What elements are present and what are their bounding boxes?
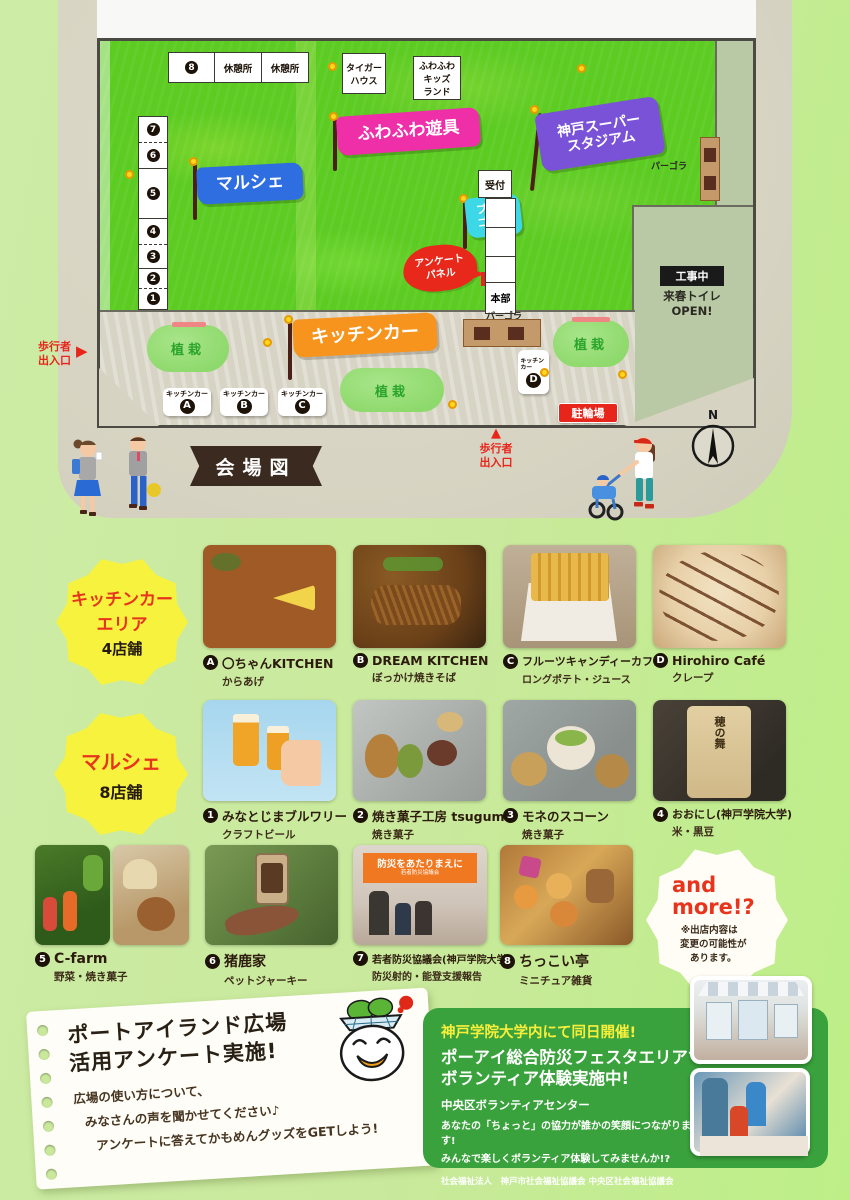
item-number: 7 [353, 951, 368, 966]
bousai-banner-text: 防災をあたりまえに [377, 859, 463, 870]
map-stall-2: 2 [139, 269, 167, 289]
photo-cfarm-vegetables [35, 845, 110, 945]
kids-land-label-1: ふわふわ [419, 59, 455, 72]
muffin [137, 897, 175, 931]
stall-number: 6 [147, 149, 160, 162]
item-name: 若者防災協議会(神戸学院大学) [372, 951, 511, 966]
item-desc: 焼き菓子 [353, 827, 509, 842]
light-dot [263, 338, 272, 347]
item-name: 焼き菓子工房 tsugumi [372, 806, 509, 825]
fuwafuwa-flag-label: ふわふわ遊具 [357, 118, 460, 145]
green-onion [383, 557, 443, 571]
spot-label: キッチンカー [166, 390, 208, 398]
pergola-table [704, 176, 716, 190]
entrance-left-arrow-icon: ▶ [76, 342, 88, 360]
photo-bousai-booth: 防災をあたりまえに 若者防災協議会 [353, 845, 487, 945]
photo-scone [503, 700, 636, 801]
item-name: C-farm [54, 951, 107, 967]
spot-label: キッチンカー [223, 390, 265, 398]
map-title: 会場図 [215, 453, 296, 480]
photo-long-potato [503, 545, 636, 648]
vegetable [63, 891, 77, 931]
kitchencar-banner-label: キッチンカー [311, 322, 420, 348]
person-silhouette [746, 1082, 766, 1126]
stroller-person-illustration [582, 430, 677, 532]
survey-note: ポートアイランド広場 活用アンケート実施! 広場の使い方について、 みなさんの声… [26, 987, 438, 1189]
item-desc: クラフトビール [203, 827, 347, 842]
map-stall-4: 4 [139, 219, 167, 245]
photo-pet-jerky [205, 845, 338, 945]
kitchencar-spot-c: キッチンカー C [278, 388, 326, 416]
kids-land-label-3: ランド [423, 85, 450, 98]
garnish [211, 553, 241, 571]
planting-label: 植栽 [574, 334, 608, 353]
punch-hole [46, 1168, 58, 1180]
person-silhouette [369, 891, 389, 935]
venue-map: 8 休憩所 休憩所 タイガー ハウス ふわふわ キッズ ランド 7 6 5 4 … [97, 38, 756, 428]
stadium-flag: 神戸スーパー スタジアム [534, 96, 666, 173]
light-dot [125, 170, 134, 179]
item-desc: クレープ [653, 670, 765, 685]
item-number: 3 [503, 808, 518, 823]
item-name: DREAM KITCHEN [372, 653, 489, 668]
photo-crepe [653, 545, 786, 648]
item-name: 猪鹿家 [224, 951, 266, 971]
item-desc: ミニチュア雑貨 [500, 973, 592, 988]
kitchen-item-caption-d: DHirohiro Café クレープ [653, 653, 765, 685]
item-letter: C [503, 654, 518, 669]
construction-sign: 工事中 [660, 266, 724, 286]
item-desc: 米・黒豆 [653, 824, 792, 839]
stall-number: 7 [147, 123, 160, 136]
punch-hole [37, 1025, 49, 1037]
map-kids-land: ふわふわ キッズ ランド [413, 56, 461, 100]
photo-cfarm-muffins [113, 845, 189, 945]
stall-number-8: 8 [185, 61, 198, 74]
planting-oval-center: 植栽 [340, 368, 444, 412]
photo-volunteer-tent [690, 976, 812, 1064]
event-flyer: 8 休憩所 休憩所 タイガー ハウス ふわふわ キッズ ランド 7 6 5 4 … [0, 0, 849, 1200]
punch-hole [38, 1049, 50, 1061]
badge-line: エリア [97, 610, 148, 635]
item-number: 8 [500, 954, 515, 969]
entrance-label-1: 歩行者 [470, 442, 522, 456]
item-name: Hirohiro Café [672, 653, 765, 668]
marche-item-caption-3: 3モネのスコーン 焼き菓子 [503, 806, 609, 842]
lemon-wedge [273, 585, 315, 611]
kitchencar-banner: キッチンカー [292, 312, 438, 357]
miniature-sweet [518, 855, 542, 879]
jerky-piece [223, 900, 301, 941]
entrance-label-2: 出入口 [38, 354, 71, 368]
map-stall-8: 8 [168, 52, 215, 83]
item-number: 5 [35, 952, 50, 967]
marche-item-caption-6: 6猪鹿家 ペットジャーキー [205, 951, 307, 988]
kids-land-label-2: キッズ [423, 72, 450, 85]
item-number: 6 [205, 954, 220, 969]
punch-hole [44, 1144, 56, 1156]
baked-good [427, 740, 457, 766]
photo-oonishi-rice: 穂の舞 [653, 700, 786, 801]
map-stall-column: 7 6 5 4 3 2 1 [138, 116, 168, 310]
light-dot [540, 368, 549, 377]
map-stall-5: 5 [139, 169, 167, 219]
poster-board [738, 1000, 768, 1040]
photo-volunteer-activity [690, 1068, 810, 1156]
item-name: 〇ちゃんKITCHEN [222, 653, 334, 672]
note-line: ※出店内容は [672, 924, 747, 938]
miniature-sweet [514, 885, 538, 909]
toilet-open-notice: 来春トイレ OPEN! [628, 289, 756, 319]
entrance-label-2: 出入口 [470, 456, 522, 470]
survey-panel-callout: アンケート パネル [400, 241, 479, 296]
fuwafuwa-flag: ふわふわ遊具 [336, 107, 481, 156]
kitchencar-area-badge: キッチンカー エリア 4店舗 [56, 556, 188, 688]
map-zone-right-strip [715, 41, 753, 205]
light-dot [328, 62, 337, 71]
chocolate-drizzle [659, 551, 779, 641]
jar-contents [261, 863, 283, 893]
volunteer-body-1: あなたの「ちょっと」の協力が誰かの笑顔につながります! [441, 1117, 701, 1147]
item-desc: 焼き菓子 [503, 827, 609, 842]
marche-flag-label: マルシェ [216, 172, 285, 195]
spot-letter: B [237, 399, 252, 414]
miniature-sweet [550, 901, 578, 927]
photo-miniature-goods [500, 845, 633, 945]
bousai-banner-subtext: 若者防災協議会 [401, 870, 440, 877]
entrance-bottom-arrow-icon: ▲ [470, 426, 522, 441]
person-silhouette [395, 903, 411, 935]
tent-roof [698, 982, 804, 996]
spot-letter: A [180, 399, 195, 414]
marche-flag-dot [189, 157, 198, 166]
item-desc: 野菜・焼き菓子 [35, 969, 128, 984]
planting-label: 植栽 [375, 381, 409, 400]
map-headquarters: 本部 [486, 283, 515, 311]
noodles [371, 585, 461, 625]
item-number: 4 [653, 807, 668, 822]
scone [511, 752, 547, 786]
light-dot [618, 370, 627, 379]
muffin [123, 859, 157, 889]
marche-item-caption-5: 5C-farm 野菜・焼き菓子 [35, 951, 128, 984]
badge-line: マルシェ [81, 746, 161, 775]
toilet-notice-line-1: 来春トイレ [628, 289, 756, 304]
stadium-flag-dot [530, 105, 539, 114]
kitchencar-spot-b: キッチンカー B [220, 388, 268, 416]
item-letter: B [353, 653, 368, 668]
hq-cell [486, 228, 515, 257]
beer-cup [233, 714, 259, 766]
scone [595, 754, 629, 788]
baked-good [437, 712, 463, 732]
marche-item-caption-1: 1みなとじまブルワリー クラフトビール [203, 806, 347, 842]
badge-line: キッチンカー [71, 585, 173, 610]
map-stall-7: 7 [139, 117, 167, 143]
rice-bag-text: 穂の舞 [711, 716, 727, 798]
fries [531, 553, 609, 601]
vegetable [43, 897, 57, 931]
stall-number: 3 [147, 250, 160, 263]
badge-line: 8店舗 [99, 779, 142, 803]
stall-number: 5 [147, 187, 160, 200]
marche-item-caption-8: 8ちっこい亭 ミニチュア雑貨 [500, 951, 592, 988]
kitchen-item-caption-c: Cフルーツキャンディーカフェ ロングポテト・ジュース [503, 653, 664, 686]
entrance-label-1: 歩行者 [38, 340, 71, 354]
kitchen-item-caption-a: A〇ちゃんKITCHEN からあげ [203, 653, 334, 689]
photo-brewery [203, 700, 336, 801]
walking-people-illustration [58, 432, 170, 528]
miniature-bear [586, 869, 614, 903]
marche-badge: マルシェ 8店舗 [54, 710, 188, 838]
item-number: 1 [203, 808, 218, 823]
item-number: 2 [353, 808, 368, 823]
entrance-bottom: 歩行者 出入口 [470, 442, 522, 470]
spot-label: キッチンカー [281, 390, 323, 398]
pergola-right-label: パーゴラ [651, 159, 687, 172]
pergola-table [508, 327, 524, 340]
hq-cell [486, 257, 515, 283]
table [700, 1136, 808, 1156]
and-more-note: ※出店内容は 変更の可能性が あります。 [672, 924, 747, 967]
item-desc: ぼっかけ焼きそば [353, 670, 489, 685]
map-rest-area-1: 休憩所 [215, 52, 262, 83]
map-reception: 受付 [478, 170, 512, 198]
marche-item-caption-2: 2焼き菓子工房 tsugumi 焼き菓子 [353, 806, 509, 842]
bousai-banner: 防災をあたりまえに 若者防災協議会 [363, 853, 477, 883]
note-line: 変更の可能性が [672, 938, 747, 952]
bench-mark [172, 322, 206, 327]
pergola-table [704, 148, 716, 162]
map-tiger-house: タイガー ハウス [342, 53, 386, 94]
map-top-margin [97, 0, 756, 40]
marche-item-caption-7: 7若者防災協議会(神戸学院大学) 防災射的・能登支援報告 [353, 951, 511, 983]
baked-good [365, 734, 399, 778]
tiger-house-label-1: タイガー [346, 61, 382, 74]
planting-label: 植栽 [171, 339, 205, 358]
planting-oval-left: 植栽 [147, 325, 229, 372]
item-letter: D [653, 653, 668, 668]
survey-panel-label-2: パネル [425, 266, 456, 283]
photo-karaage [203, 545, 336, 648]
stall-number: 4 [147, 225, 160, 238]
punch-hole [43, 1121, 55, 1133]
matcha-topping [555, 730, 587, 746]
spot-letter: C [295, 399, 310, 414]
map-hq-column: 本部 [485, 198, 516, 314]
jerky-jar [255, 853, 289, 905]
pergola-right-structure [700, 137, 720, 201]
item-name: ちっこい亭 [519, 951, 589, 971]
photo-yakisoba [353, 545, 486, 648]
map-rest-area-2: 休憩所 [262, 52, 309, 83]
note-line: あります。 [672, 952, 747, 966]
item-desc: ペットジャーキー [205, 973, 307, 988]
tiger-house-label-2: ハウス [350, 74, 377, 87]
map-stall-3: 3 [139, 245, 167, 269]
map-path-left [100, 41, 110, 310]
photo-tsugumi-sweets [353, 700, 486, 801]
poster-board [706, 1002, 732, 1040]
badge-line: 4店舗 [102, 638, 142, 659]
marche-flag: マルシェ [196, 162, 304, 204]
entrance-left: 歩行者 出入口 [38, 340, 71, 368]
and-more-badge: and more!? ※出店内容は 変更の可能性が あります。 [646, 846, 788, 994]
compass-icon [688, 420, 738, 472]
marche-item-caption-4: 4おおにし(神戸学院大学) 米・黒豆 [653, 806, 792, 839]
item-name: モネのスコーン [522, 806, 609, 825]
light-dot [448, 400, 457, 409]
pergola-table [474, 327, 490, 340]
person-silhouette [702, 1078, 728, 1138]
item-name: みなとじまブルワリー [222, 806, 347, 825]
miniature-sweet [546, 873, 572, 899]
kitchen-item-caption-b: BDREAM KITCHEN ぼっかけ焼きそば [353, 653, 489, 685]
item-desc: からあげ [203, 674, 334, 689]
and-more-line: more!? [672, 896, 755, 918]
person-silhouette [415, 901, 432, 935]
item-desc: ロングポテト・ジュース [503, 671, 664, 686]
punch-hole [41, 1097, 53, 1109]
map-title-ribbon: 会場図 [190, 446, 322, 486]
bench-mark [572, 317, 610, 322]
kamomen-mascot-icon [318, 990, 423, 1088]
and-more-line: and [672, 874, 716, 896]
volunteer-body-2: みんなで楽しくボランティア体験してみませんか!? [441, 1150, 701, 1165]
map-stall-1: 1 [139, 289, 167, 308]
kitchencar-banner-pole [288, 322, 292, 380]
spot-letter: D [526, 373, 541, 388]
survey-note-title: ポートアイランド広場 活用アンケート実施! [67, 1008, 290, 1078]
bike-parking-sign: 駐輪場 [558, 403, 618, 423]
toilet-notice-line-2: OPEN! [628, 304, 756, 319]
planting-oval-right: 植栽 [553, 320, 629, 367]
item-desc: 防災射的・能登支援報告 [353, 968, 511, 983]
vegetable [83, 855, 103, 891]
kitchencar-spot-a: キッチンカー A [163, 388, 211, 416]
hq-cell [486, 199, 515, 228]
baked-good [397, 744, 423, 778]
map-stall-6: 6 [139, 143, 167, 169]
hand [281, 740, 321, 786]
person-silhouette [730, 1106, 748, 1136]
rice-bag: 穂の舞 [687, 706, 751, 798]
item-name: おおにし(神戸学院大学) [672, 806, 792, 822]
punch-hole [40, 1073, 52, 1085]
item-name: フルーツキャンディーカフェ [522, 653, 664, 669]
stall-number: 2 [147, 272, 160, 285]
light-dot [577, 64, 586, 73]
rest-area-row: 8 休憩所 休憩所 [168, 52, 309, 83]
volunteer-footer: 社会福祉法人 神戸市社会福祉協議会 中央区社会福祉協議会 [441, 1175, 828, 1187]
stall-number: 1 [147, 292, 160, 305]
item-letter: A [203, 655, 218, 670]
poster-board [774, 1004, 798, 1038]
pergola-bottom-structure [463, 319, 541, 347]
